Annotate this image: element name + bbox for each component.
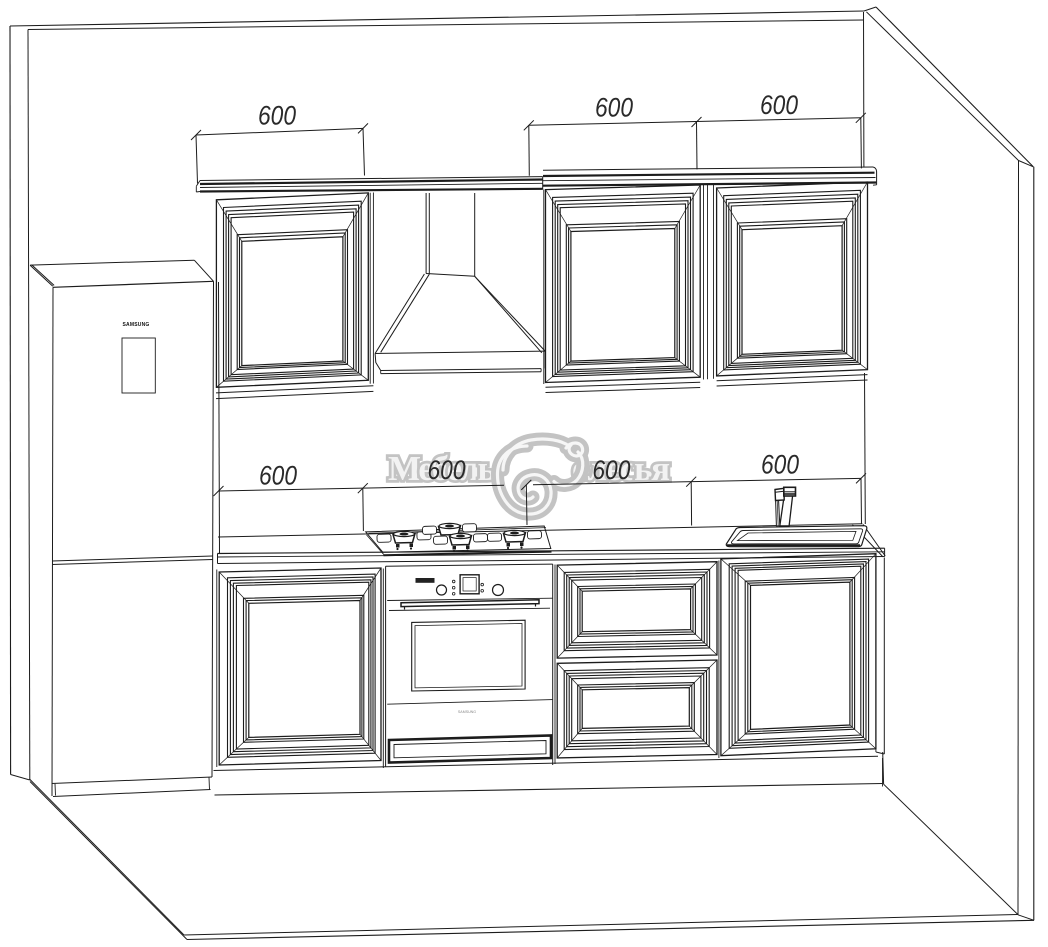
svg-text:600: 600 xyxy=(595,93,633,123)
svg-text:600: 600 xyxy=(760,90,798,120)
svg-text:SAMSUNG: SAMSUNG xyxy=(458,710,476,714)
svg-text:600: 600 xyxy=(592,455,630,485)
svg-text:600: 600 xyxy=(258,101,296,131)
svg-text:SAMSUNG: SAMSUNG xyxy=(123,322,150,328)
svg-text:600: 600 xyxy=(428,455,466,485)
svg-text:600: 600 xyxy=(761,450,799,480)
svg-text:600: 600 xyxy=(259,461,297,491)
